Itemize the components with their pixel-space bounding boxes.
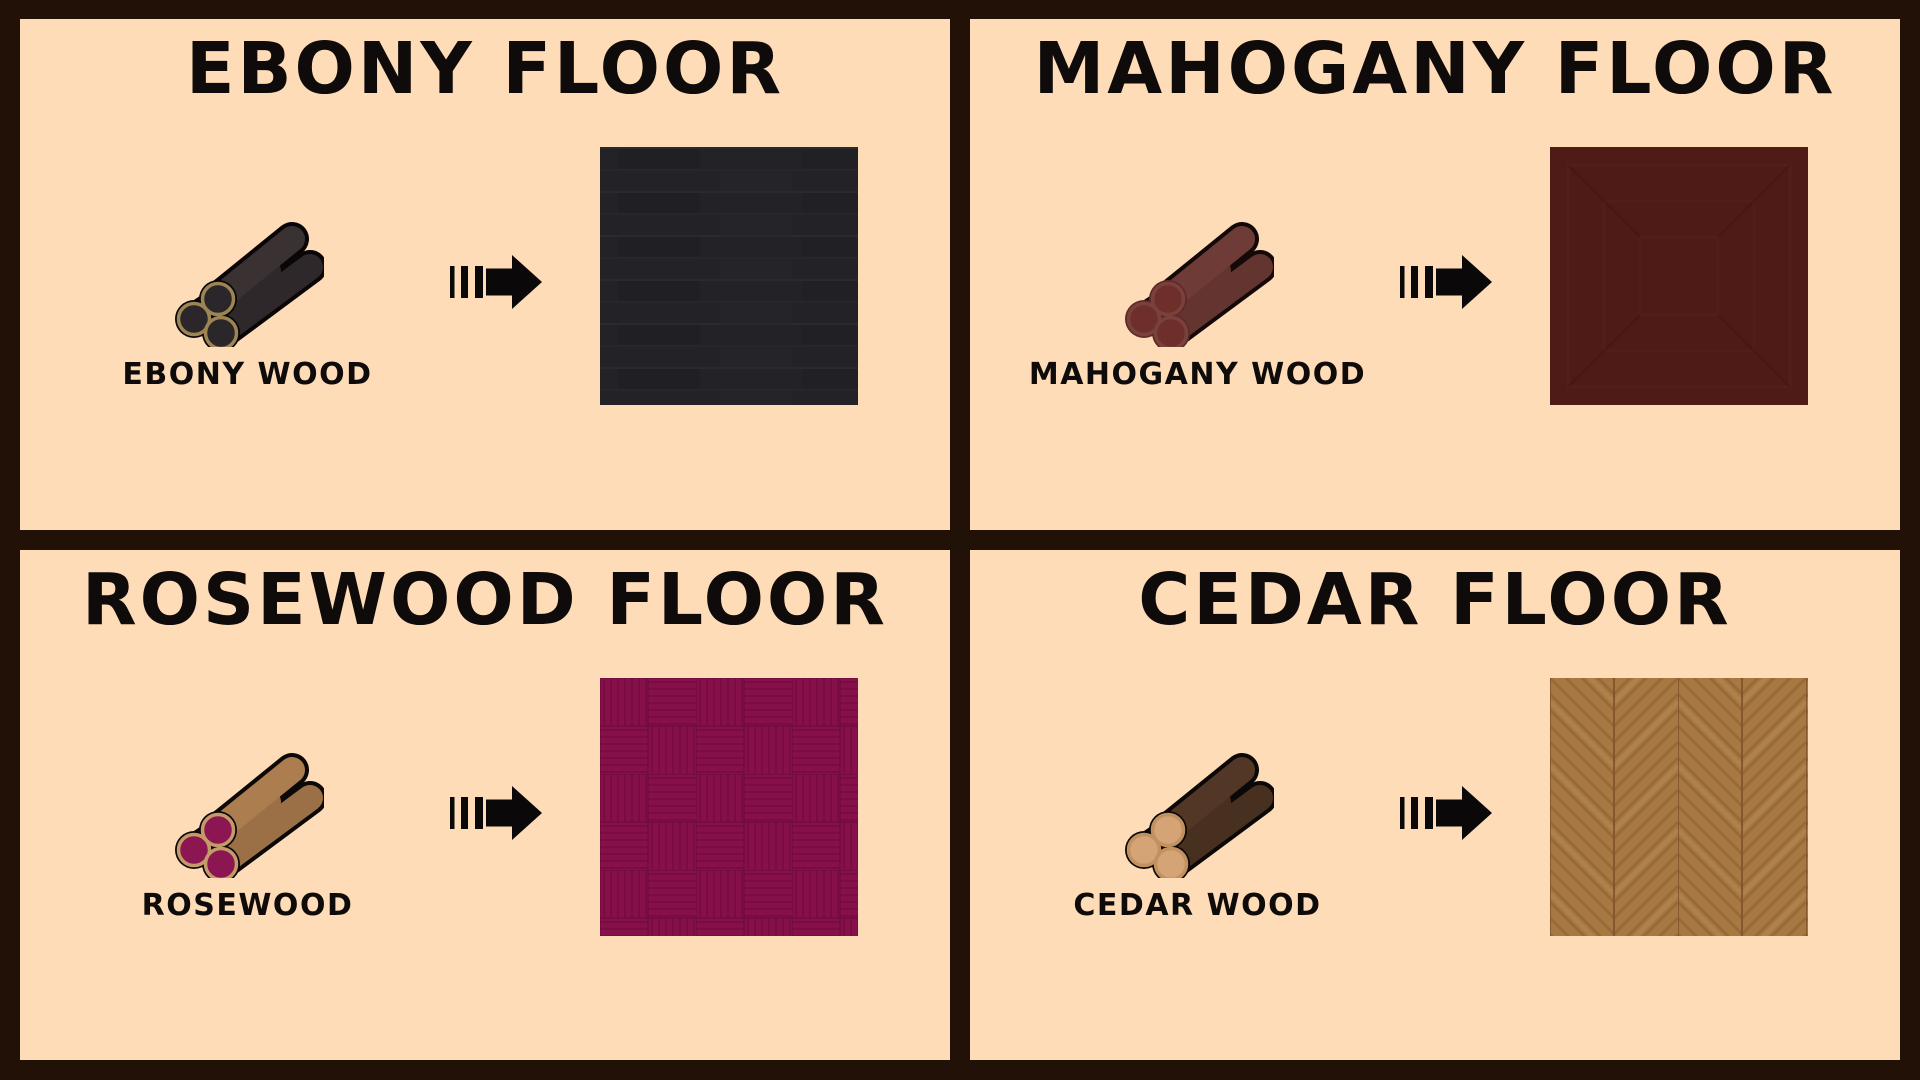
- ingredient-mahogany-wood: MAHOGANY WOOD: [1025, 219, 1370, 392]
- panel-cedar-floor: CEDAR FLOOR: [970, 550, 1900, 1060]
- ingredient-cedar-wood: CEDAR WOOD: [1025, 750, 1370, 923]
- wood-log-icon: [1122, 750, 1274, 878]
- wood-label: MAHOGANY WOOD: [1029, 357, 1366, 392]
- infographic-background: { "colors": { "frame": "#211107", "panel…: [0, 0, 1920, 1080]
- wood-log-icon: [1122, 219, 1274, 347]
- floor-swatch-ebony: [600, 147, 858, 405]
- panel-mahogany-floor: MAHOGANY FLOOR: [970, 19, 1900, 530]
- floor-recipe-board: EBONY FLOOR: [0, 0, 1920, 1080]
- wood-label: CEDAR WOOD: [1073, 888, 1321, 923]
- page-title: CEDAR FLOOR: [970, 564, 1900, 635]
- ingredient-ebony-wood: EBONY WOOD: [75, 219, 420, 392]
- wood-label: EBONY WOOD: [122, 357, 372, 392]
- panel-ebony-floor: EBONY FLOOR: [20, 19, 950, 530]
- ingredient-rosewood: ROSEWOOD: [75, 750, 420, 923]
- page-title: MAHOGANY FLOOR: [970, 33, 1900, 104]
- wood-label: ROSEWOOD: [142, 888, 354, 923]
- floor-swatch-cedar: [1550, 678, 1808, 936]
- page-title: ROSEWOOD FLOOR: [20, 564, 950, 635]
- transform-arrow-icon: [1400, 255, 1492, 309]
- wood-log-icon: [172, 219, 324, 347]
- floor-swatch-mahogany: [1550, 147, 1808, 405]
- wood-log-icon: [172, 750, 324, 878]
- panel-rosewood-floor: ROSEWOOD FLOOR: [20, 550, 950, 1060]
- floor-swatch-rosewood: [600, 678, 858, 936]
- transform-arrow-icon: [1400, 786, 1492, 840]
- transform-arrow-icon: [450, 786, 542, 840]
- page-title: EBONY FLOOR: [20, 33, 950, 104]
- transform-arrow-icon: [450, 255, 542, 309]
